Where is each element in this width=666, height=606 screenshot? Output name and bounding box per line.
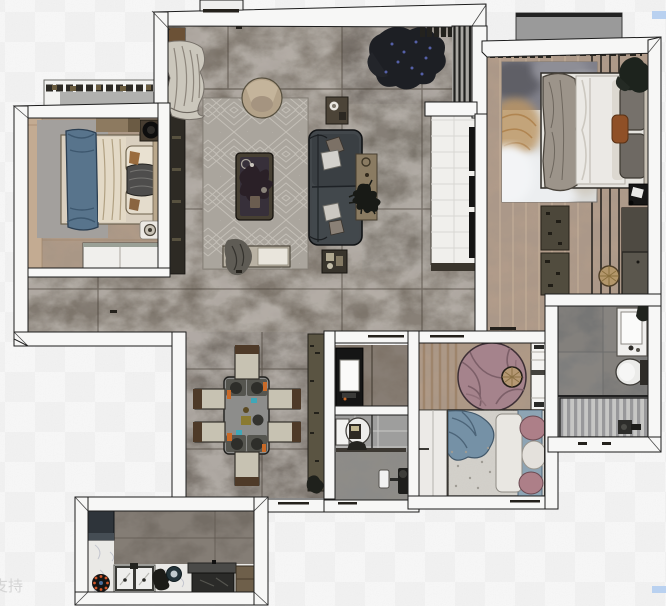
svg-text:支持: 支持: [0, 578, 23, 595]
